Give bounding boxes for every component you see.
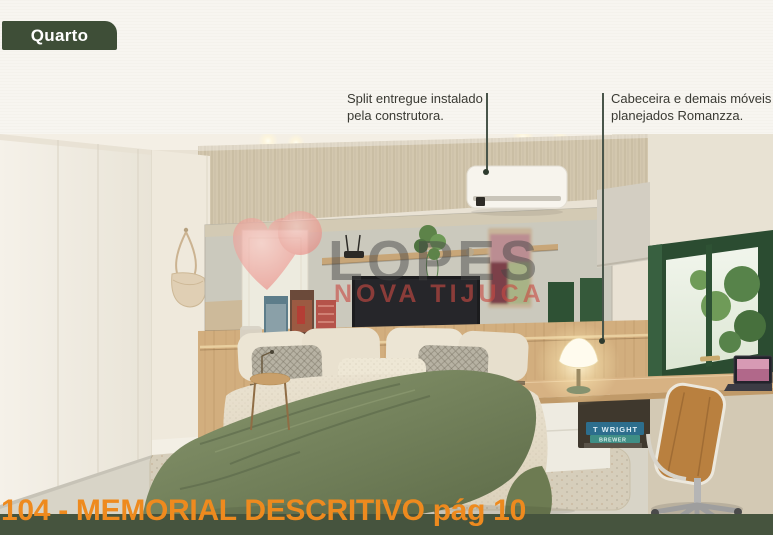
section-badge: Quarto (2, 21, 117, 50)
callout-line-split (486, 93, 488, 173)
watermark-subtitle: NOVA TIJUCA (334, 280, 545, 308)
roller-blind (597, 182, 650, 268)
annotation-headboard: Cabeceira e demais móveis planejados Rom… (611, 90, 771, 124)
bedroom-scene: T WRIGHT BREWER (0, 134, 773, 514)
ac-split-unit (467, 166, 567, 216)
wardrobe (0, 134, 152, 509)
callout-dot-split (483, 169, 489, 175)
footer-title: 104 - MEMORIAL DESCRITIVO pág 10 (1, 494, 526, 528)
callout-dot-headboard (599, 338, 605, 344)
callout-line-headboard (602, 93, 604, 341)
annotation-split-ac: Split entregue instalado pela construtor… (347, 90, 483, 124)
bedroom-render: T WRIGHT BREWER (0, 134, 773, 514)
book-spine-text: T WRIGHT (593, 425, 638, 434)
page: Quarto Split entregue instalado pela con… (0, 0, 773, 535)
table-lamp (536, 322, 620, 406)
book-spine-text-2: BREWER (599, 438, 626, 444)
